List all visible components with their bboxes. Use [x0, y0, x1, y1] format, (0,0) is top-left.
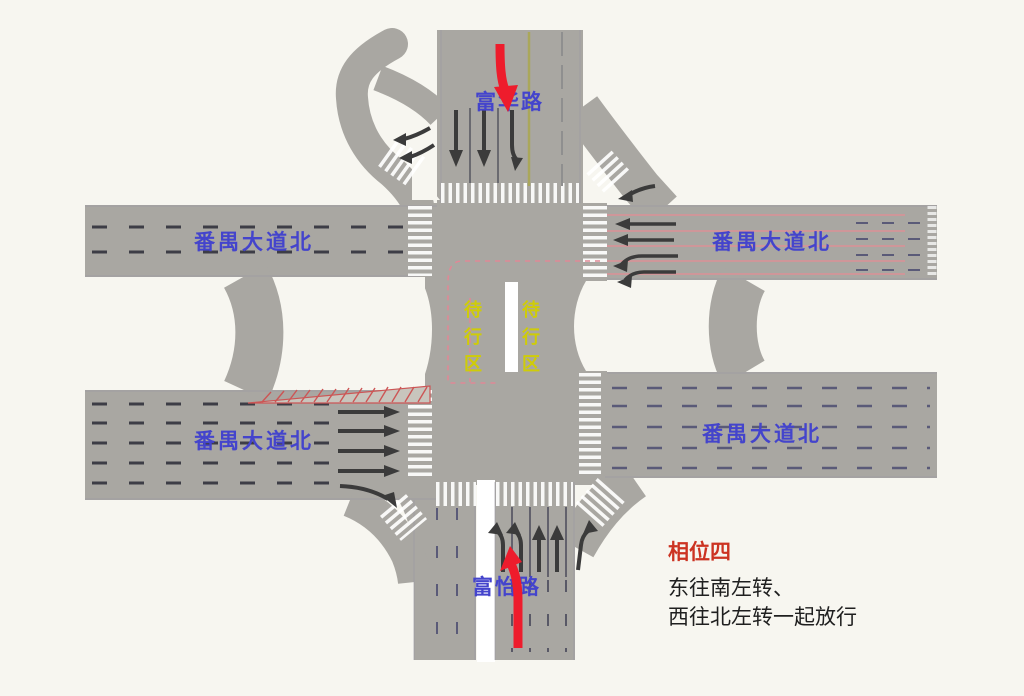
release-arrow-south: [500, 546, 522, 648]
release-arrow-canvas: [0, 0, 1024, 696]
release-arrow-north: [494, 44, 518, 112]
intersection-diagram: 富华路 番禺大道北 番禺大道北 番禺大道北 番禺大道北 富怡路 待 行 区 待 …: [0, 0, 1024, 696]
